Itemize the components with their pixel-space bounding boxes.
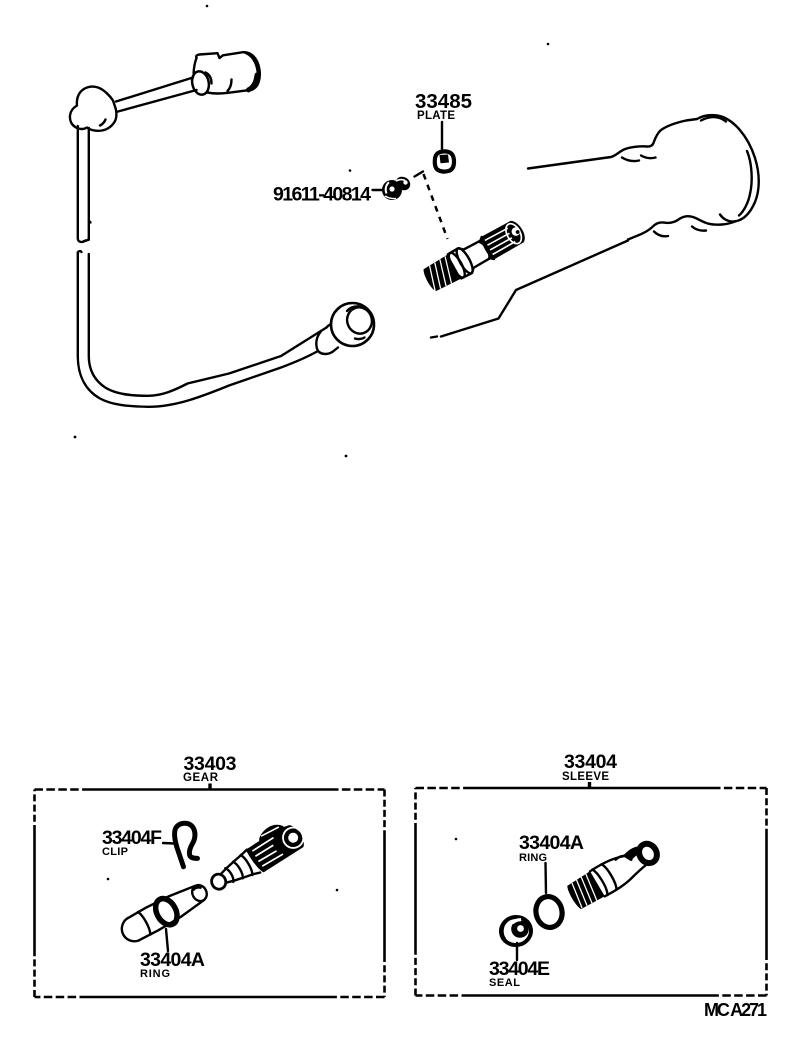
svg-text:33404A: 33404A [519, 832, 584, 854]
svg-text:91611-40814: 91611-40814 [273, 184, 371, 206]
svg-text:PLATE: PLATE [417, 110, 455, 122]
svg-text:RING: RING [519, 852, 547, 864]
svg-text:SEAL: SEAL [489, 977, 520, 989]
svg-text:RING: RING [140, 968, 170, 980]
svg-text:MC A271: MC A271 [704, 1000, 767, 1020]
svg-text:GEAR: GEAR [183, 772, 219, 784]
svg-text:33404: 33404 [564, 751, 617, 773]
svg-text:CLIP: CLIP [102, 846, 128, 858]
svg-text:SLEEVE: SLEEVE [562, 771, 609, 783]
